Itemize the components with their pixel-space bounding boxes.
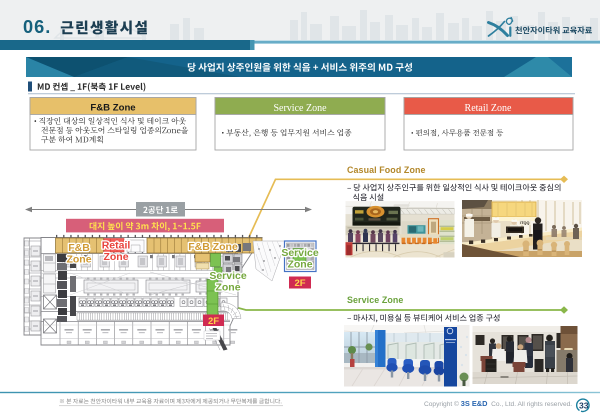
svg-text:Zone: Zone: [103, 251, 128, 263]
svg-text:Service Zone: Service Zone: [273, 103, 327, 114]
svg-text:Service: Service: [209, 270, 247, 282]
svg-text:Zone: Zone: [215, 281, 240, 293]
svg-text:F&B: F&B: [68, 242, 90, 254]
svg-text:Service Zone: Service Zone: [347, 295, 403, 305]
svg-text:2F: 2F: [294, 278, 305, 289]
svg-text:Retail: Retail: [102, 240, 131, 252]
svg-text:F&B Zone: F&B Zone: [90, 103, 135, 114]
svg-text:Service: Service: [281, 247, 319, 259]
svg-text:06.: 06.: [23, 17, 51, 37]
svg-text:Casual Food Zone: Casual Food Zone: [347, 165, 426, 175]
svg-text:2F: 2F: [208, 316, 219, 327]
svg-text:F&B Zone: F&B Zone: [188, 241, 238, 253]
svg-text:ITQQ: ITQQ: [520, 221, 529, 225]
svg-text:Retail Zone: Retail Zone: [465, 103, 512, 114]
svg-text:33: 33: [579, 401, 589, 411]
svg-text:Zone: Zone: [66, 254, 91, 266]
svg-text:Copyright © 3S E&D Co., Ltd.: Copyright © 3S E&D Co., Ltd. All rights …: [424, 399, 572, 408]
svg-text:Zone: Zone: [287, 259, 312, 271]
